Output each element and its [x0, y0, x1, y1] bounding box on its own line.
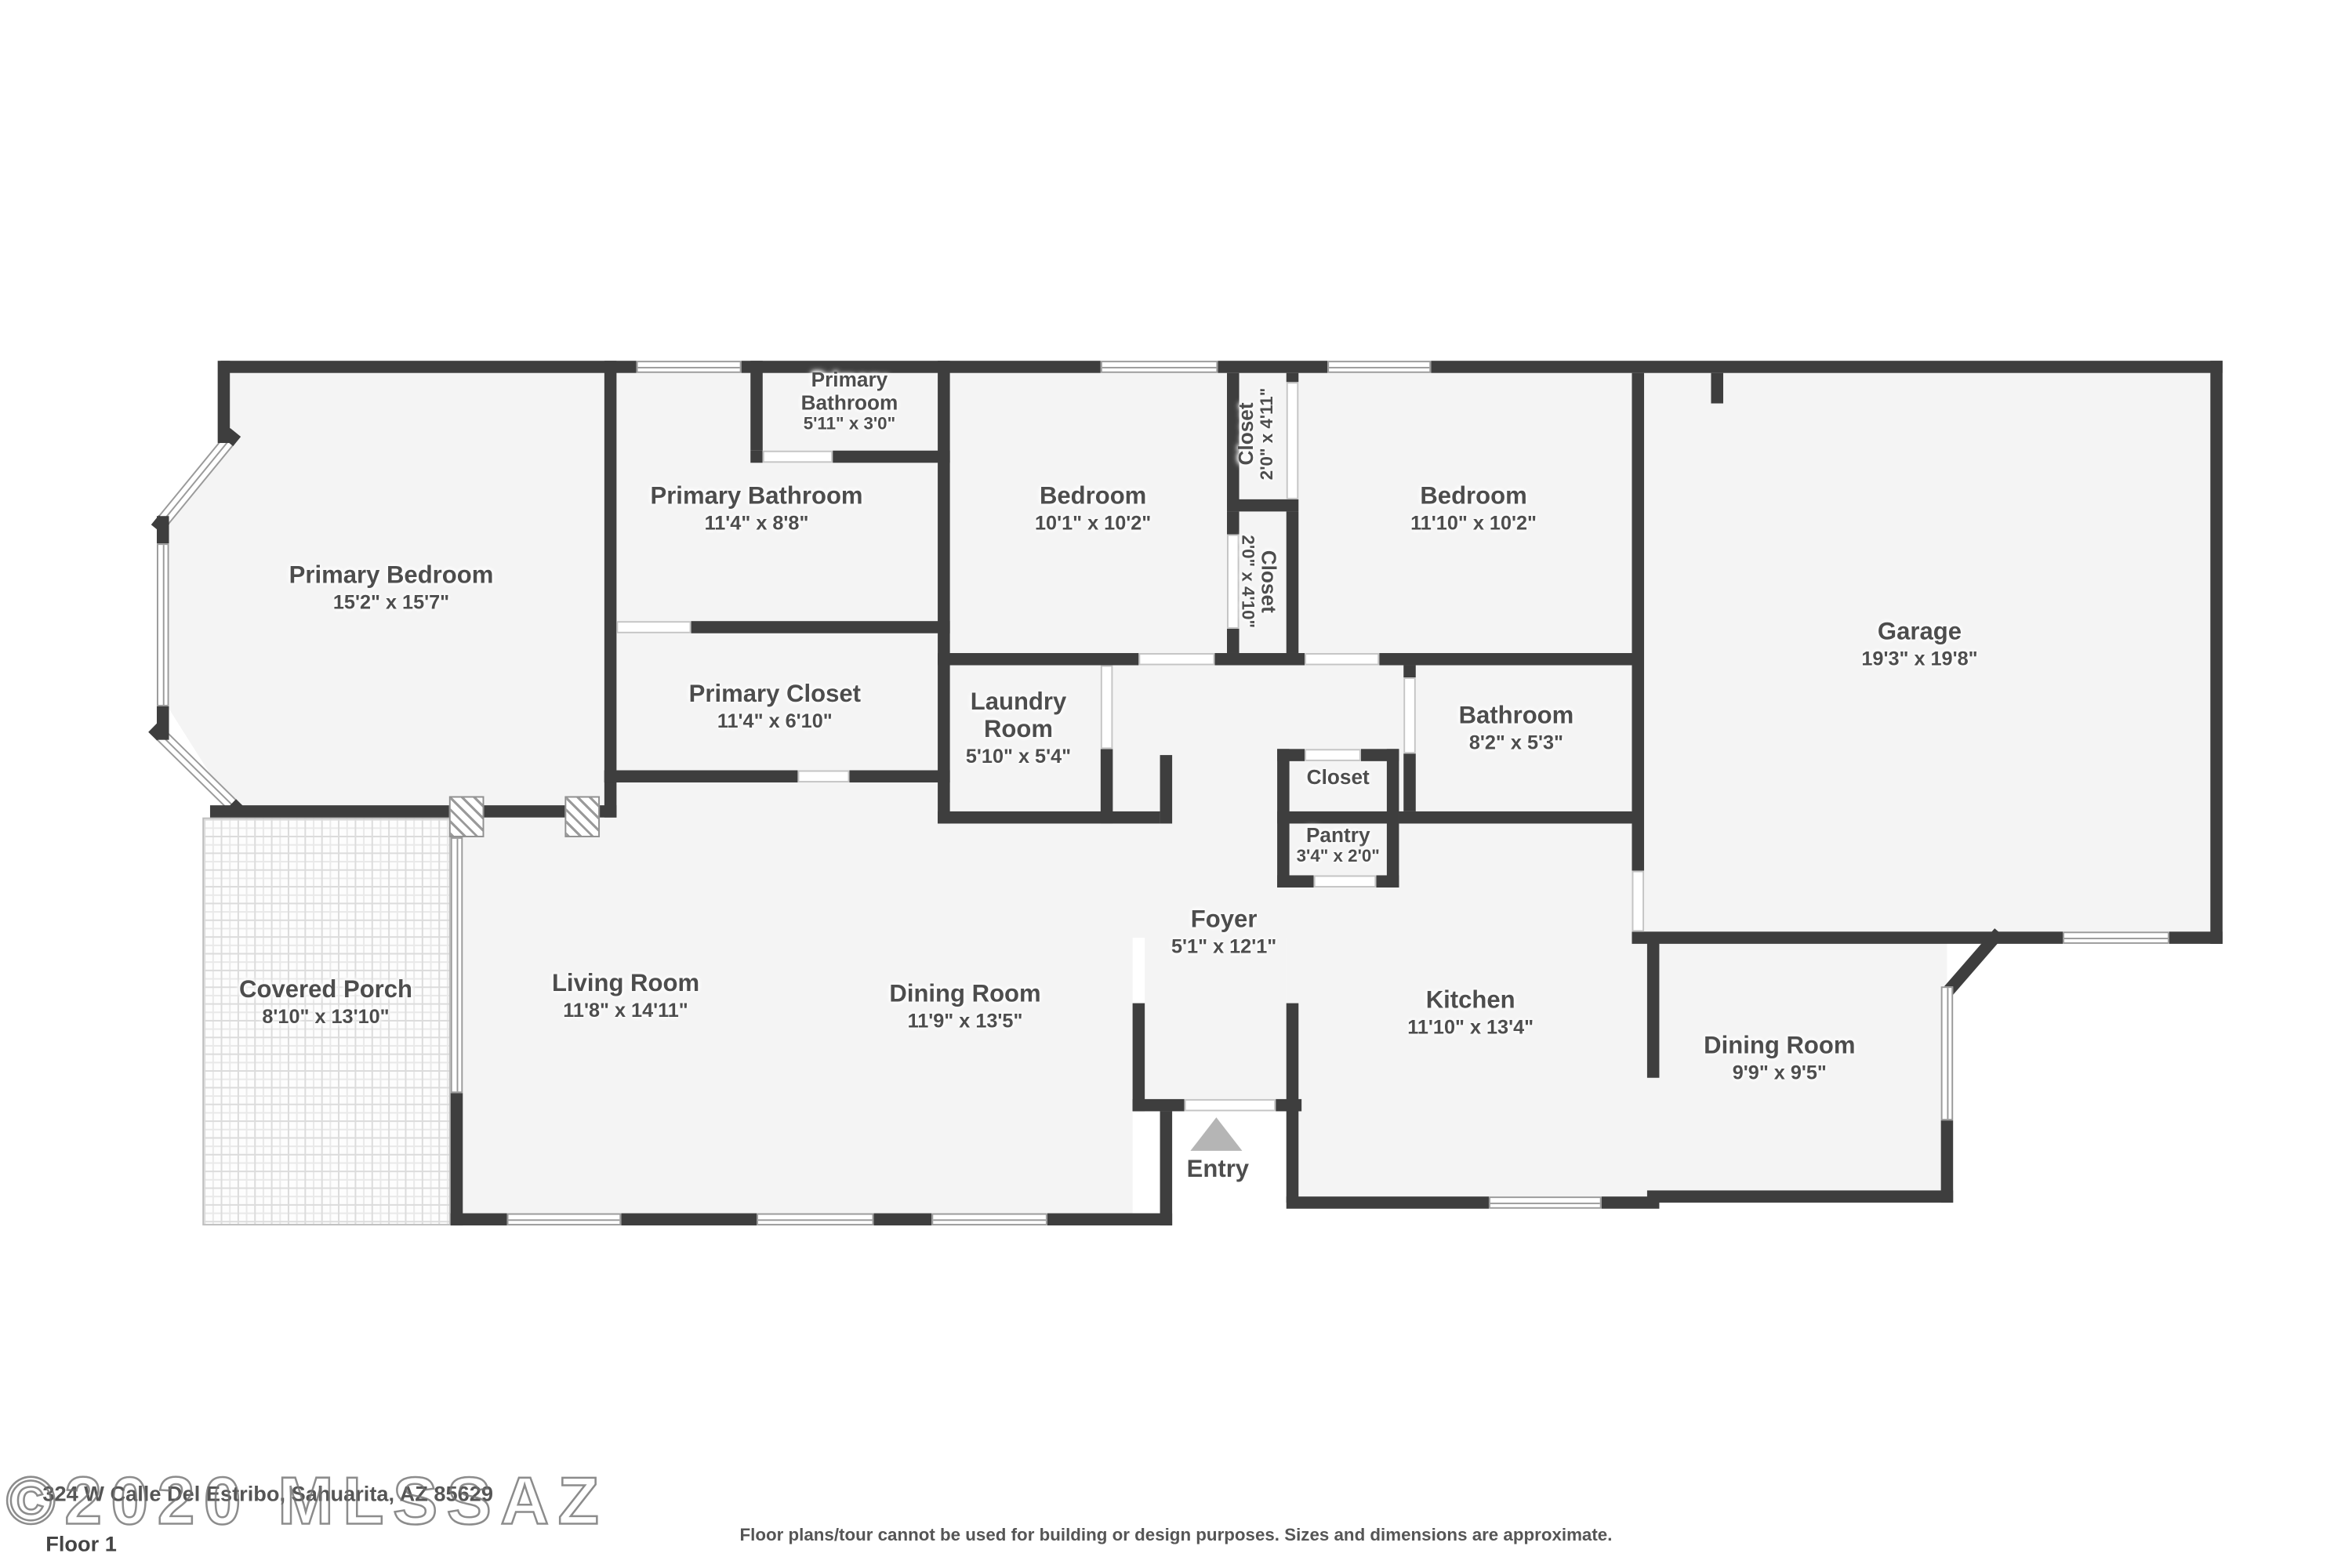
window	[1489, 1196, 1602, 1209]
wall	[1276, 1099, 1301, 1112]
wall	[1277, 875, 1314, 887]
wall	[833, 451, 950, 463]
wall	[218, 361, 230, 443]
wall	[1133, 1004, 1145, 1112]
wall	[1376, 875, 1399, 887]
wall	[1287, 511, 1299, 653]
room-label-primary-bathroom: Primary Bathroom 11'4" x 8'8"	[604, 484, 909, 537]
window	[1941, 986, 1954, 1120]
wall	[1379, 653, 1632, 666]
room-label-primary-bedroom: Primary Bedroom 15'2" x 15'7"	[239, 563, 543, 616]
window	[2063, 931, 2169, 944]
wall	[1711, 373, 1723, 404]
window	[931, 1214, 1047, 1226]
window	[507, 1214, 622, 1226]
wall	[1399, 811, 1632, 824]
wall	[1287, 1196, 1489, 1209]
wall	[221, 361, 637, 373]
wall	[1647, 1190, 1953, 1203]
wall	[1632, 931, 2063, 944]
door-opening	[1305, 653, 1379, 666]
wall	[849, 771, 949, 783]
wall	[1277, 811, 1399, 824]
wall	[1047, 1214, 1172, 1226]
room-label-living-room: Living Room 11'8" x 14'11"	[474, 971, 778, 1025]
room-label-pantry: Pantry 3'4" x 2'0"	[1262, 823, 1414, 869]
mls-watermark: ©2020 MLSSAZ	[6, 1465, 608, 1541]
wall	[451, 1093, 463, 1225]
wall	[874, 1214, 932, 1226]
wall	[938, 811, 1160, 824]
wall	[2210, 361, 2223, 944]
wall	[691, 621, 950, 633]
window	[637, 361, 742, 373]
room-label-garage: Garage 19'3" x 19'8"	[1767, 619, 2071, 673]
wall	[157, 516, 169, 543]
door-opening	[616, 621, 691, 633]
door-opening	[1314, 875, 1377, 887]
wall	[750, 451, 763, 463]
floor-plan-page: Primary Bedroom 15'2" x 15'7" Primary Ba…	[0, 0, 2352, 1568]
bay-window-and-diagonal-walls	[0, 0, 2352, 1568]
door-opening	[1632, 871, 1645, 932]
room-label-kitchen: Kitchen 11'10" x 13'4"	[1319, 988, 1623, 1041]
porch-door	[564, 797, 600, 837]
entry-label: Entry	[1127, 1157, 1309, 1185]
room-label-covered-porch: Covered Porch 8'10" x 13'10"	[173, 978, 477, 1031]
closet-door-opening	[1287, 382, 1299, 499]
room-label-hall-closet: Closet	[1262, 766, 1414, 789]
room-label-primary-bathroom-small: Primary Bathroom 5'11" x 3'0"	[758, 368, 941, 437]
floor-plan-canvas: Primary Bedroom 15'2" x 15'7" Primary Ba…	[0, 0, 2352, 1568]
wall	[604, 361, 617, 782]
room-label-closet-2: Closet 2'0" x 4'10"	[1235, 490, 1280, 673]
room-label-laundry-room: Laundry Room 5'10" x 5'4"	[927, 690, 1109, 770]
wall	[2169, 931, 2223, 944]
room-label-dining-room: Dining Room 11'9" x 13'5"	[813, 982, 1117, 1035]
wall	[1277, 749, 1305, 761]
wall	[938, 653, 1138, 666]
room-label-foyer: Foyer 5'1" x 12'1"	[1072, 907, 1376, 960]
wall	[1602, 1196, 1660, 1209]
window	[757, 1214, 874, 1226]
wall	[604, 771, 798, 783]
room-label-bathroom: Bathroom 8'2" x 5'3"	[1364, 703, 1668, 757]
wall	[484, 805, 566, 818]
wall	[1431, 361, 2223, 373]
wall	[1403, 666, 1416, 678]
window	[451, 837, 463, 1093]
room-label-primary-closet: Primary Closet 11'4" x 6'10"	[622, 682, 927, 735]
room-label-bedroom-1: Bedroom 10'1" x 10'2"	[941, 484, 1245, 537]
door-opening	[763, 451, 833, 463]
room-label-dining-room-2: Dining Room 9'9" x 9'5"	[1628, 1033, 1932, 1087]
wall	[1133, 1099, 1185, 1112]
door-opening	[1305, 749, 1361, 761]
wall	[1632, 373, 1645, 871]
wall	[1287, 373, 1299, 383]
room-label-bedroom-2: Bedroom 11'10" x 10'2"	[1321, 484, 1625, 537]
wall	[210, 805, 451, 818]
wall	[157, 706, 169, 740]
entry-door-opening	[1185, 1099, 1276, 1112]
door-opening	[797, 771, 849, 783]
wall	[621, 1214, 757, 1226]
window	[157, 543, 169, 706]
wall	[1160, 755, 1173, 823]
window	[1327, 361, 1431, 373]
entry-direction-icon	[1190, 1117, 1242, 1151]
door-opening	[1138, 653, 1214, 666]
window	[1101, 361, 1218, 373]
porch-door	[449, 797, 485, 837]
